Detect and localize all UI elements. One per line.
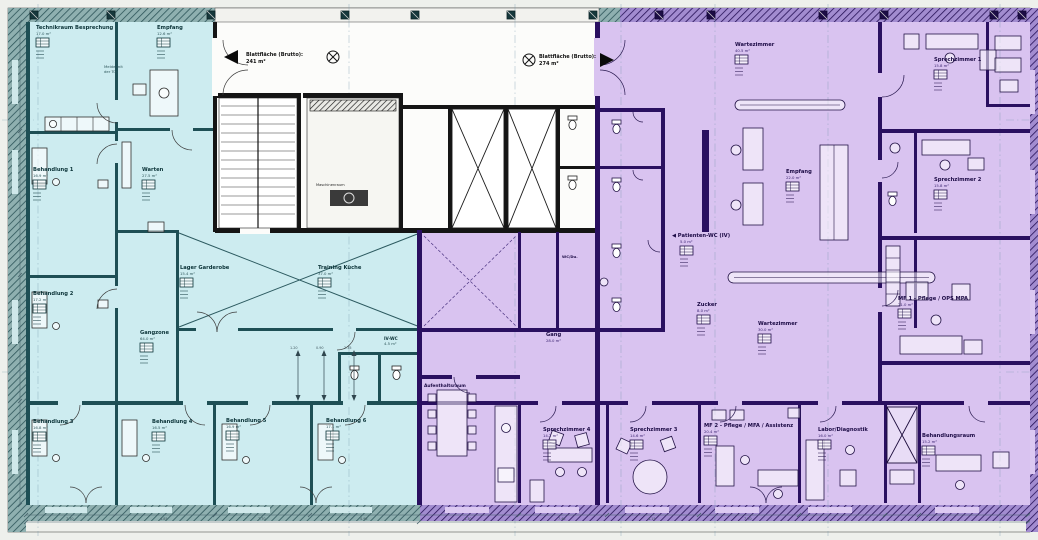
dim-label: 4.95	[360, 517, 368, 521]
room-area: 22.0 m²	[786, 175, 801, 180]
floor-plan: Blattfläche (Brutto): 241 m² Blattfläche…	[0, 0, 1038, 540]
sheet-area-left-value: 241 m²	[246, 59, 266, 65]
room-area: 17.2 m²	[33, 297, 48, 302]
dim-label: 1.20	[290, 346, 298, 350]
dim-label: 7.70	[258, 517, 266, 521]
room-area: 27.5 m²	[142, 173, 157, 178]
staircase	[219, 98, 297, 228]
room-label: Maschinenraum	[316, 183, 345, 187]
room-area: 16.9 m²	[226, 424, 241, 429]
room-area: 17.0 m²	[36, 31, 51, 36]
dim-label: 2.35	[344, 346, 352, 350]
room-label: WC/Du.	[562, 254, 578, 259]
room-area: 14.2 m²	[543, 433, 558, 438]
room-area: 37.0 m²	[318, 271, 333, 276]
room-area: 15.2 m²	[922, 439, 937, 444]
dim-label: 7.70	[66, 517, 74, 521]
dim-label: 4.30	[464, 517, 472, 521]
room-area: 5.0 m²	[680, 239, 693, 244]
dim-label: 7.70	[744, 517, 752, 521]
door-note: der Tür	[104, 69, 118, 74]
sheet-area-right-value: 274 m²	[539, 61, 559, 67]
sheet-area-left-label: Blattfläche (Brutto):	[246, 52, 303, 58]
room-area: 20.4 m²	[704, 429, 719, 434]
room-label: Aufenthaltsraum	[424, 383, 466, 389]
room-area: 64.0 m²	[140, 336, 155, 341]
room-area: 16.0 m²	[818, 433, 833, 438]
room-area: 15.8 m²	[934, 63, 949, 68]
room-area: 28.0 m²	[546, 338, 561, 343]
dim-label: 0.90	[316, 346, 324, 350]
dim-label: 4.15	[648, 517, 656, 521]
service-shaft	[887, 407, 917, 463]
machine-room	[307, 98, 399, 228]
room-area: 16.8 m²	[33, 425, 48, 430]
dim-label: 7.45	[558, 517, 566, 521]
room-area: 15.8 m²	[934, 183, 949, 188]
room-area: 16.5 m²	[152, 425, 167, 430]
room-area: 15.4 m²	[180, 271, 195, 276]
dim-label: 4.85	[160, 517, 168, 521]
room-area: 30.0 m²	[758, 327, 773, 332]
elevator-shaft	[452, 109, 556, 228]
room-area: 4.5 m²	[384, 341, 397, 346]
room-area: 40.5 m²	[735, 48, 750, 53]
room-area: 17.1 m²	[326, 424, 341, 429]
room-area: 12.6 m²	[157, 31, 172, 36]
room-area: 16.9 m²	[33, 173, 48, 178]
room-area: 14.6 m²	[630, 433, 645, 438]
room-area: 8.0 m²	[697, 308, 710, 313]
core-entry-gap-left	[212, 38, 218, 96]
sheet-area-right-label: Blattfläche (Brutto):	[539, 54, 596, 60]
floor-plan-screenshot: Blattfläche (Brutto): 241 m² Blattfläche…	[0, 0, 1038, 540]
room-area: 21.0 m²	[898, 302, 913, 307]
